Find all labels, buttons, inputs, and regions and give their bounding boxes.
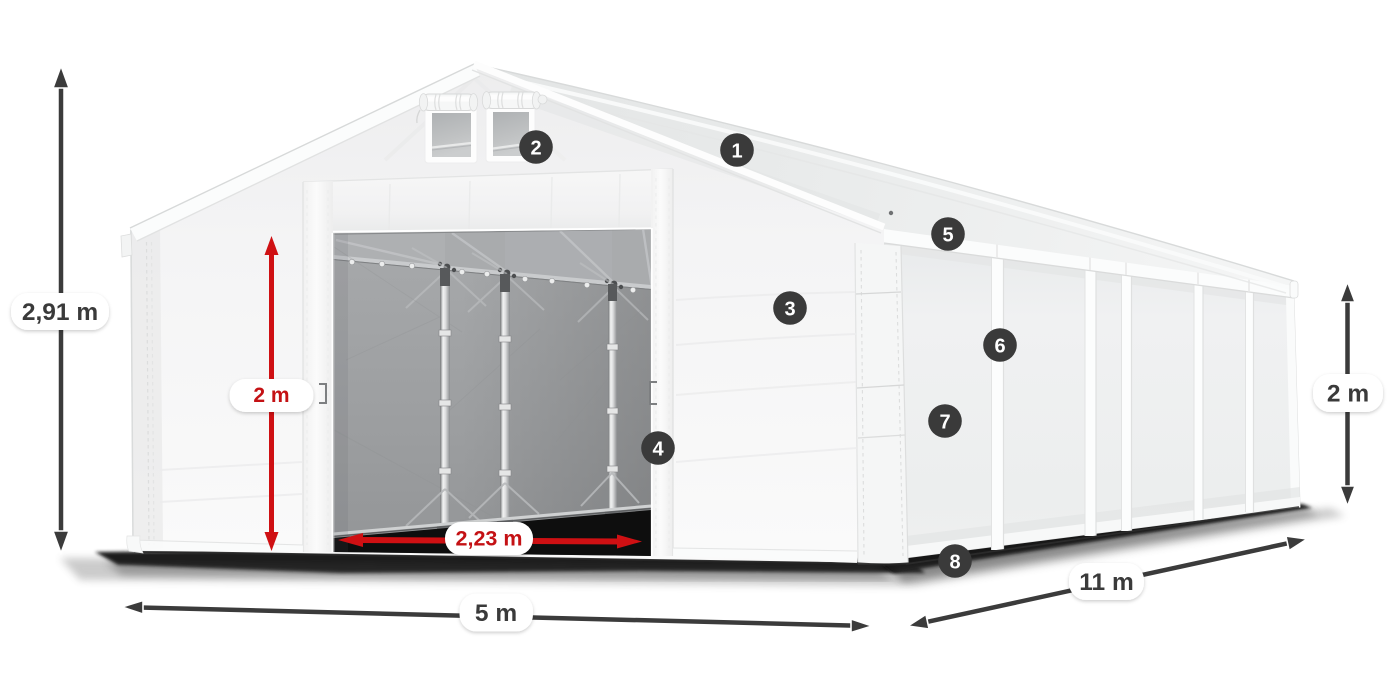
svg-text:2,23 m: 2,23 m xyxy=(456,527,523,551)
svg-text:4: 4 xyxy=(652,438,664,460)
svg-text:8: 8 xyxy=(949,551,960,573)
svg-text:2 m: 2 m xyxy=(253,384,289,407)
svg-text:2,91 m: 2,91 m xyxy=(22,299,98,326)
svg-text:5: 5 xyxy=(942,224,953,246)
svg-text:2 m: 2 m xyxy=(1327,381,1369,408)
svg-text:5 m: 5 m xyxy=(475,600,517,627)
svg-text:11 m: 11 m xyxy=(1079,569,1134,596)
svg-text:2: 2 xyxy=(530,137,541,159)
svg-text:7: 7 xyxy=(939,411,950,433)
svg-text:3: 3 xyxy=(784,298,795,320)
svg-text:6: 6 xyxy=(994,335,1005,357)
svg-text:1: 1 xyxy=(731,140,742,162)
